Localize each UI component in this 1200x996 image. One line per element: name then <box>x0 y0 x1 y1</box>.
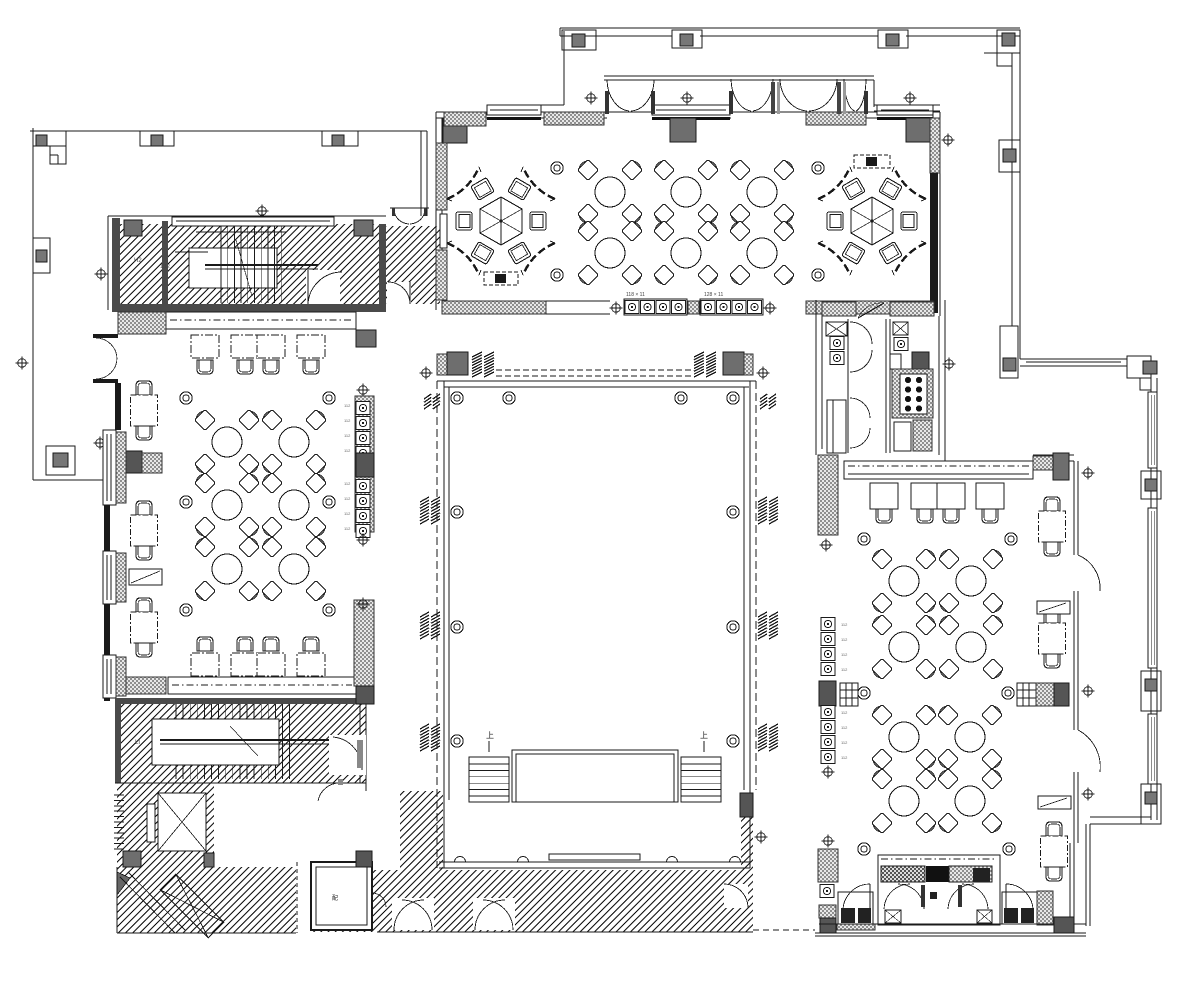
svg-text:128 × 11: 128 × 11 <box>704 292 723 298</box>
svg-text:112: 112 <box>344 511 351 516</box>
svg-text:1:12: 1:12 <box>160 264 170 270</box>
svg-text:112: 112 <box>841 755 848 760</box>
svg-text:112: 112 <box>344 418 351 423</box>
svg-text:112: 112 <box>841 637 848 642</box>
svg-text:H2: H2 <box>134 258 142 264</box>
svg-text:112: 112 <box>344 403 351 408</box>
svg-text:112: 112 <box>841 667 848 672</box>
svg-text:112: 112 <box>344 481 351 486</box>
svg-text:上: 上 <box>486 731 494 740</box>
svg-text:配: 配 <box>332 895 338 902</box>
svg-text:112: 112 <box>841 622 848 627</box>
svg-text:112: 112 <box>841 710 848 715</box>
svg-text:112: 112 <box>344 496 351 501</box>
svg-text:上: 上 <box>700 731 708 740</box>
svg-text:112: 112 <box>344 448 351 453</box>
svg-text:LI: LI <box>135 740 140 746</box>
svg-text:112: 112 <box>344 526 351 531</box>
svg-text:112: 112 <box>841 652 848 657</box>
svg-text:118 × 11: 118 × 11 <box>626 292 645 298</box>
svg-text:112: 112 <box>841 725 848 730</box>
svg-text:112: 112 <box>344 433 351 438</box>
svg-text:112: 112 <box>841 740 848 745</box>
